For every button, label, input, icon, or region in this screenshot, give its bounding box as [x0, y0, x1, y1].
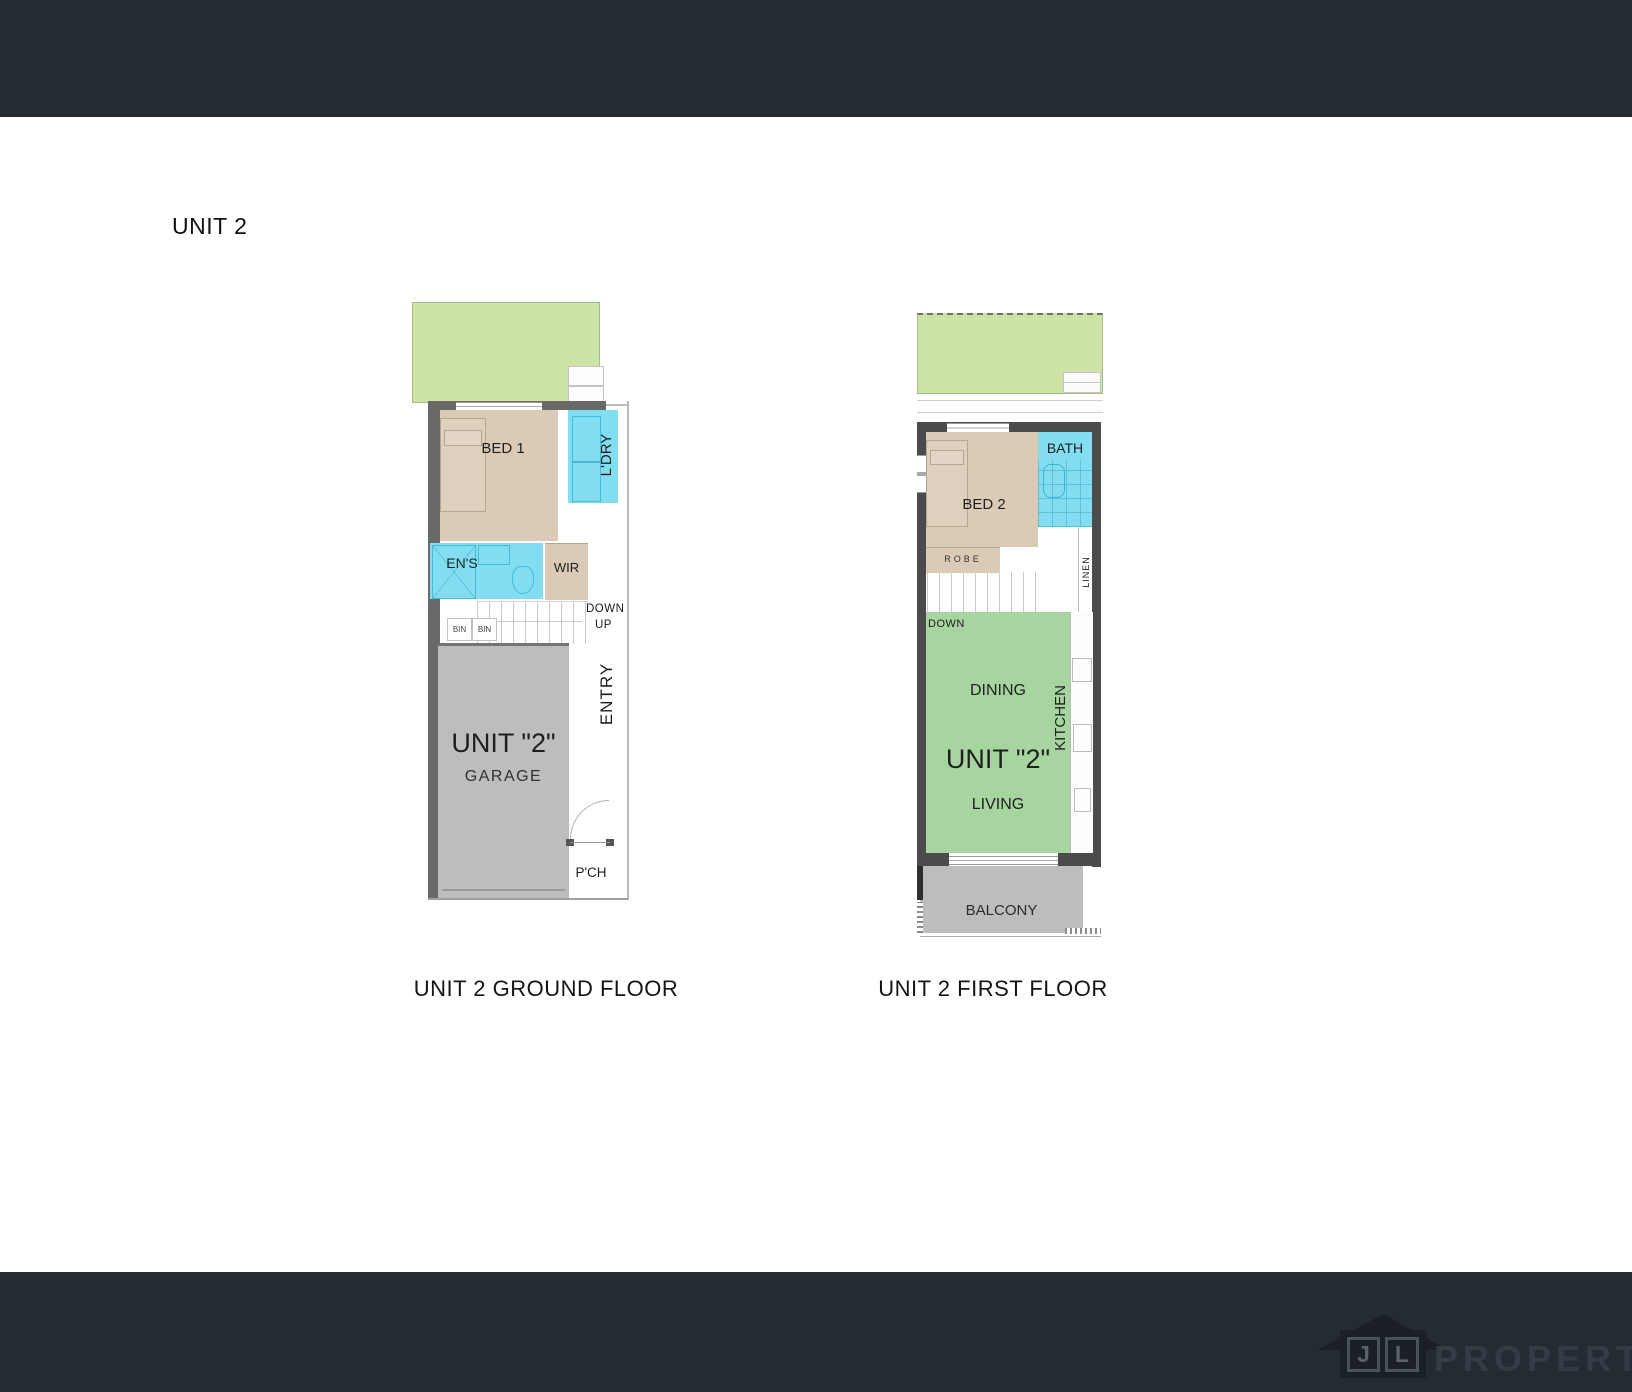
- ens-shower-fixture: [432, 545, 476, 599]
- page-title: UNIT 2: [172, 213, 247, 240]
- logo-letter-l: L: [1385, 1337, 1419, 1372]
- label-dining: DINING: [926, 682, 1070, 700]
- logo-letter-j: J: [1347, 1337, 1380, 1372]
- ground-entry-landing: [568, 366, 604, 406]
- balcony-corner-hatch: [1065, 928, 1101, 934]
- label-down: DOWN: [586, 603, 624, 615]
- kitchen-cooktop-outline: [1073, 724, 1092, 752]
- first-right-wall: [1092, 422, 1101, 867]
- balcony-wall-left: [917, 853, 949, 866]
- ground-right-boundary: [627, 401, 629, 900]
- first-floor-caption: UNIT 2 FIRST FLOOR: [870, 976, 1116, 1002]
- balcony-sliding-door: [949, 856, 1058, 865]
- first-bottom-boundary: [920, 936, 1101, 937]
- label-porch: P'CH: [566, 865, 616, 880]
- footer-band: J L PROPERTY: [0, 1272, 1632, 1392]
- label-living: LIVING: [926, 796, 1070, 814]
- porch-threshold-line: [570, 842, 610, 843]
- label-first-down: DOWN: [928, 618, 965, 630]
- label-up: UP: [595, 619, 612, 631]
- label-balcony: BALCONY: [920, 902, 1083, 919]
- kitchen-appliance-outline: [1074, 788, 1091, 812]
- bed2-pillow-outline: [930, 450, 964, 465]
- balcony-post: [917, 866, 923, 900]
- label-living-unit: UNIT "2": [926, 744, 1070, 775]
- eaves-line-1: [917, 400, 1103, 401]
- label-bed2: BED 2: [930, 496, 1038, 513]
- label-garage: GARAGE: [438, 768, 569, 786]
- first-top-wall: [917, 422, 1101, 432]
- kitchen-sink-outline: [1072, 658, 1092, 682]
- label-garage-unit: UNIT "2": [438, 728, 569, 759]
- room-living-dining: [926, 612, 1070, 853]
- logo-wordmark: PROPERTY: [1434, 1338, 1632, 1380]
- ground-top-edge-line: [606, 404, 628, 406]
- top-band: [0, 0, 1632, 117]
- stairs-direction-line: [482, 621, 582, 622]
- bed2-side-window: [917, 455, 926, 493]
- first-stairs: [927, 572, 1039, 613]
- label-kitchen: KITCHEN: [1052, 673, 1068, 763]
- bin-box-2: BIN: [472, 618, 497, 641]
- label-linen: LINEN: [1080, 542, 1092, 602]
- first-floor-plan: BED 2 ROBE BATH LINEN DOWN DINING UNIT "…: [870, 300, 1115, 950]
- label-ens: EN'S: [432, 555, 492, 571]
- label-ldry: L'DRY: [598, 410, 614, 500]
- ground-floor-caption: UNIT 2 GROUND FLOOR: [410, 976, 682, 1002]
- garage-door-line: [442, 889, 565, 891]
- jl-property-logo: J L PROPERTY: [1300, 1272, 1632, 1392]
- room-balcony: [920, 866, 1083, 933]
- bath-tub-fixture: [1043, 464, 1065, 498]
- bin-box-1: BIN: [447, 618, 472, 641]
- entry-door-arc: [570, 800, 609, 839]
- eaves-line-2: [917, 412, 1103, 413]
- label-robe: ROBE: [926, 554, 1000, 564]
- balcony-wall-right: [1058, 853, 1101, 866]
- label-bed1: BED 1: [448, 440, 558, 457]
- label-entry: ENTRY: [598, 649, 616, 739]
- ground-bottom-boundary: [428, 898, 628, 900]
- label-wir: WIR: [545, 560, 588, 575]
- house-icon-body: J L: [1340, 1330, 1426, 1378]
- label-bath: BATH: [1038, 440, 1092, 456]
- ens-toilet-fixture: [512, 566, 534, 594]
- ground-floor-plan: BED 1 L'DRY EN'S WIR DOWN UP BIN BIN UNI…: [410, 300, 630, 950]
- first-yard-landing: [1063, 372, 1101, 393]
